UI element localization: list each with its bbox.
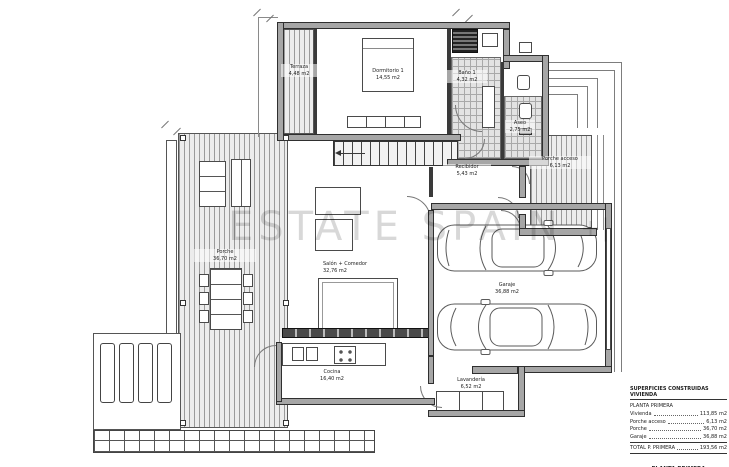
post [180, 300, 186, 306]
room-label-aseo: Aseo 2,75 m2 [505, 120, 535, 133]
sofa [315, 219, 353, 251]
stair-direction-line [341, 153, 365, 154]
toilet [519, 103, 532, 119]
legend-header: SUPERFICIES CONSTRUIDAS VIVIENDA [630, 386, 727, 400]
wall [428, 356, 434, 384]
outdoor-lounge-table [231, 159, 251, 207]
exterior-path-line [597, 135, 598, 230]
room-area: 6,52 m2 [440, 384, 502, 391]
stair-direction-arrow-icon [335, 150, 341, 156]
legend-row-label: Vivienda [630, 411, 652, 417]
legend-panel: SUPERFICIES CONSTRUIDAS VIVIENDA PLANTA … [630, 386, 727, 467]
chair [199, 292, 209, 305]
legend-row-value: 36,70 m2 [703, 426, 727, 432]
room-area: 4,32 m2 [447, 77, 487, 84]
wardrobe [347, 116, 421, 128]
dotted-leader [668, 423, 704, 424]
wall-partition [501, 62, 504, 159]
shower-screen [482, 86, 495, 128]
rug [318, 278, 398, 335]
section-tick [161, 121, 169, 129]
post [180, 135, 186, 141]
wall [519, 228, 597, 236]
shower-tray [452, 29, 478, 53]
legend-row: Vivienda 113,85 m2 [630, 411, 727, 417]
chair [243, 274, 253, 287]
dotted-leader [649, 438, 702, 439]
post [180, 420, 186, 426]
room-label-garaje: Garaje 36,88 m2 [478, 282, 536, 295]
exterior-path-line [548, 94, 578, 128]
post [283, 300, 289, 306]
washer-units [436, 391, 504, 411]
room-label-lavanderia: Lavandería 6,52 m2 [440, 377, 502, 390]
wall [277, 22, 510, 29]
sun-lounger [157, 343, 172, 403]
washbasin [519, 42, 532, 53]
dotted-leader [654, 415, 698, 416]
wall-partition [314, 29, 317, 134]
dotted-leader [649, 430, 701, 431]
wall [428, 210, 434, 356]
wall [283, 134, 461, 141]
kitchen-island [282, 328, 433, 338]
wall [276, 342, 282, 402]
section-tick [452, 9, 460, 17]
room-area: 4,48 m2 [281, 71, 317, 78]
legend-row-value: 6,13 m2 [706, 419, 727, 425]
wall [519, 166, 526, 198]
chair [243, 292, 253, 305]
terrace-decking [283, 29, 314, 134]
planter-strip [166, 140, 177, 345]
exterior-path-line [603, 135, 604, 230]
legend-row: Garaje 36,88 m2 [630, 434, 727, 440]
room-label-salon: Salón + Comedor 32,76 m2 [323, 261, 383, 274]
wall [503, 29, 510, 69]
bed [362, 38, 414, 92]
wall [277, 22, 284, 141]
room-label-dormitorio: Dormitorio 1 14,55 m2 [363, 68, 413, 81]
room-label-porche: Porche 36,70 m2 [194, 249, 256, 262]
eave-line [258, 17, 259, 137]
room-area: 5,43 m2 [443, 171, 491, 178]
room-label-recibidor: Recibidor 5,43 m2 [443, 164, 491, 177]
legend-section: PLANTA PRIMERA [630, 403, 727, 409]
chair [199, 274, 209, 287]
room-area: 36,70 m2 [194, 256, 256, 263]
rug-inner-border [322, 282, 394, 331]
room-label-porche-acceso: Porche acceso 6,13 m2 [529, 156, 591, 169]
legend-row-label: Porche acceso [630, 419, 666, 425]
legend-row-value: 36,88 m2 [703, 434, 727, 440]
legend-row-label: Garaje [630, 434, 647, 440]
chair [243, 310, 253, 323]
garage-door [606, 228, 611, 350]
legend-total-value: 193,56 m2 [700, 445, 727, 451]
sink [292, 347, 304, 361]
steps [93, 430, 375, 453]
room-area: 32,76 m2 [323, 268, 383, 275]
legend-row: Porche 36,70 m2 [630, 426, 727, 432]
car-icon [436, 299, 598, 355]
room-area: 14,55 m2 [363, 75, 413, 82]
wall [431, 203, 612, 210]
wall [276, 398, 435, 405]
room-area: 6,13 m2 [529, 163, 591, 170]
outdoor-sofa [199, 161, 226, 207]
washbasin [482, 33, 498, 47]
sun-lounger [100, 343, 115, 403]
sun-lounger [119, 343, 134, 403]
legend-total-row: TOTAL P. PRIMERA 193,56 m2 [630, 442, 727, 454]
wall [518, 366, 612, 373]
stove [334, 346, 356, 364]
post [283, 420, 289, 426]
room-area: 16,40 m2 [301, 376, 363, 383]
toilet [517, 75, 530, 90]
wall [428, 410, 525, 417]
room-label-terraza: Terraza 4,48 m2 [281, 64, 317, 77]
section-tick [266, 15, 274, 23]
wall-partition [429, 167, 433, 197]
sun-lounger [138, 343, 153, 403]
outdoor-table [210, 268, 242, 330]
floor-plan: Terraza 4,48 m2 Dormitorio 1 14,55 m2 Ba… [0, 0, 729, 467]
room-area: 2,75 m2 [505, 127, 535, 134]
sofa [315, 187, 361, 215]
legend-row-value: 113,85 m2 [700, 411, 727, 417]
room-area: 36,88 m2 [478, 289, 536, 296]
legend-row-label: Porche [630, 426, 647, 432]
section-tick [253, 9, 261, 17]
legend-row: Porche acceso 6,13 m2 [630, 419, 727, 425]
room-label-bano: Baño 1 4,32 m2 [447, 70, 487, 83]
wall [472, 366, 518, 374]
sink [306, 347, 318, 361]
legend-total-label: TOTAL P. PRIMERA [630, 445, 675, 451]
chair [199, 310, 209, 323]
dotted-leader [677, 449, 698, 450]
wall [542, 55, 549, 166]
room-label-cocina: Cocina 16,40 m2 [301, 369, 363, 382]
bed-pillow-line [363, 48, 413, 49]
post [283, 135, 289, 141]
